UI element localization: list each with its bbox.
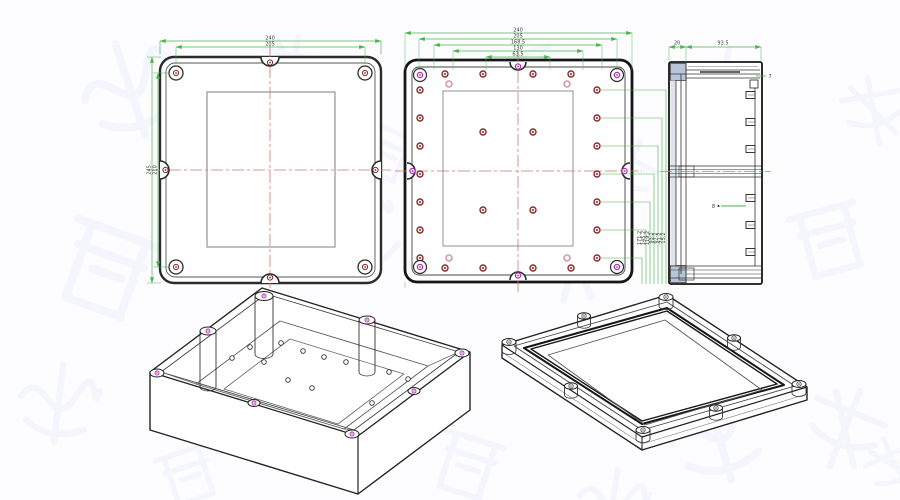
boss-screw-center xyxy=(366,319,367,320)
mount-hole-center xyxy=(419,117,421,119)
mount-hole-center xyxy=(596,89,598,91)
floor-hole xyxy=(322,355,327,360)
boss-screw-center xyxy=(642,429,644,431)
boss-screw-center xyxy=(413,390,414,391)
screw-center xyxy=(375,169,377,171)
watermark-glyph xyxy=(52,219,158,321)
pilot-hole-pink xyxy=(564,81,570,87)
mount-hole-center xyxy=(444,267,446,269)
dim-side-lid: 20 xyxy=(674,41,680,47)
screw-center xyxy=(624,170,626,172)
tab-leader-dot xyxy=(718,205,720,207)
floor-hole xyxy=(406,377,411,382)
floor-hole xyxy=(370,401,375,406)
mount-hole-center xyxy=(419,201,421,203)
screw-center xyxy=(419,266,421,268)
boss-screw-center xyxy=(715,407,717,409)
view-lid-top: 240 205 245 210 xyxy=(147,36,394,296)
drawing-canvas: 240 205 245 210 240205168.513063.515.241… xyxy=(0,0,900,500)
side-wall-shade xyxy=(671,81,676,266)
rib-detail xyxy=(750,80,758,88)
mount-hole-center xyxy=(419,257,421,259)
mount-hole-center xyxy=(482,267,484,269)
mount-hole-center xyxy=(596,201,598,203)
watermark-glyph xyxy=(155,445,220,500)
view-base-top: 240205168.513063.515.241.267.293.2119.21… xyxy=(395,28,667,293)
view-iso-lid xyxy=(502,294,807,451)
screw-center xyxy=(175,72,177,74)
dim-side-tab: 8 xyxy=(712,204,715,210)
mount-hole-center xyxy=(596,257,598,259)
floor-hole xyxy=(387,370,392,375)
screw-center xyxy=(517,275,519,277)
floor-hole xyxy=(248,345,253,350)
view-side: 20 93.5 7 8 xyxy=(660,41,772,285)
watermark-glyph xyxy=(14,359,103,449)
pilot-hole-pink xyxy=(564,255,570,261)
dim-side-rib: 7 xyxy=(768,74,771,80)
mount-hole-center xyxy=(596,145,598,147)
mount-hole-center xyxy=(596,173,598,175)
boss-screw-center xyxy=(665,296,667,298)
mount-hole-center xyxy=(596,229,598,231)
screw-center xyxy=(175,266,177,268)
dim-side-depth: 93.5 xyxy=(717,41,728,47)
mount-hole-center xyxy=(419,173,421,175)
dim-lid-height-bosses: 210 xyxy=(153,165,159,175)
side-section-top xyxy=(671,64,687,81)
screw-center xyxy=(269,62,271,64)
boss-screw-center xyxy=(253,402,254,403)
screw-center xyxy=(616,74,618,76)
watermark-glyph xyxy=(838,72,900,149)
boss-screw-center xyxy=(733,337,735,339)
pilot-hole-pink xyxy=(446,255,452,261)
mount-hole-center xyxy=(596,117,598,119)
boss-screw-center xyxy=(351,433,352,434)
floor-hole xyxy=(310,386,315,391)
floor-hole xyxy=(301,349,306,354)
mount-hole-center xyxy=(570,73,572,75)
boss-screw-center xyxy=(508,341,510,343)
screw-center xyxy=(412,170,414,172)
mount-hole-center xyxy=(419,229,421,231)
floor-hole xyxy=(230,356,235,361)
floor-hole xyxy=(344,360,349,365)
mount-hole-center xyxy=(419,89,421,91)
floor-hole xyxy=(262,360,267,365)
watermark-glyph xyxy=(430,430,504,500)
watermark-glyph xyxy=(858,427,900,500)
boss-screw-center xyxy=(461,352,462,353)
mount-hole-center xyxy=(532,267,534,269)
screw-center xyxy=(616,266,618,268)
boss-screw-center xyxy=(207,330,208,331)
mount-hole-center xyxy=(532,209,534,211)
screw-center xyxy=(364,266,366,268)
boss-screw-center xyxy=(263,295,264,296)
floor-hole xyxy=(286,378,291,383)
mount-hole-center xyxy=(570,267,572,269)
screw-center xyxy=(517,66,519,68)
boss-screw-center xyxy=(156,372,157,373)
boss-screw-center xyxy=(570,385,572,387)
dim-base-right-6: 171.2 xyxy=(637,231,643,245)
screw-center xyxy=(419,74,421,76)
boss-screw-center xyxy=(798,383,800,385)
dim-lid-width-bosses: 205 xyxy=(265,42,275,48)
mount-hole-center xyxy=(444,73,446,75)
pilot-hole-pink xyxy=(446,81,452,87)
mount-hole-center xyxy=(482,209,484,211)
watermark-glyph xyxy=(796,378,893,480)
screw-center xyxy=(165,169,167,171)
floor-hole xyxy=(279,341,284,346)
mount-hole-center xyxy=(482,73,484,75)
mount-hole-center xyxy=(419,145,421,147)
mount-hole-center xyxy=(532,73,534,75)
watermark-glyph xyxy=(572,463,653,500)
dim-base-top-4: 63.5 xyxy=(512,52,523,58)
screw-center xyxy=(364,72,366,74)
boss-screw-center xyxy=(583,315,585,317)
mount-hole-center xyxy=(482,131,484,133)
mount-hole-center xyxy=(532,131,534,133)
drawing-svg: 240 205 245 210 240205168.513063.515.241… xyxy=(0,0,900,500)
watermark-glyph xyxy=(789,202,869,279)
screw-center xyxy=(269,277,271,279)
